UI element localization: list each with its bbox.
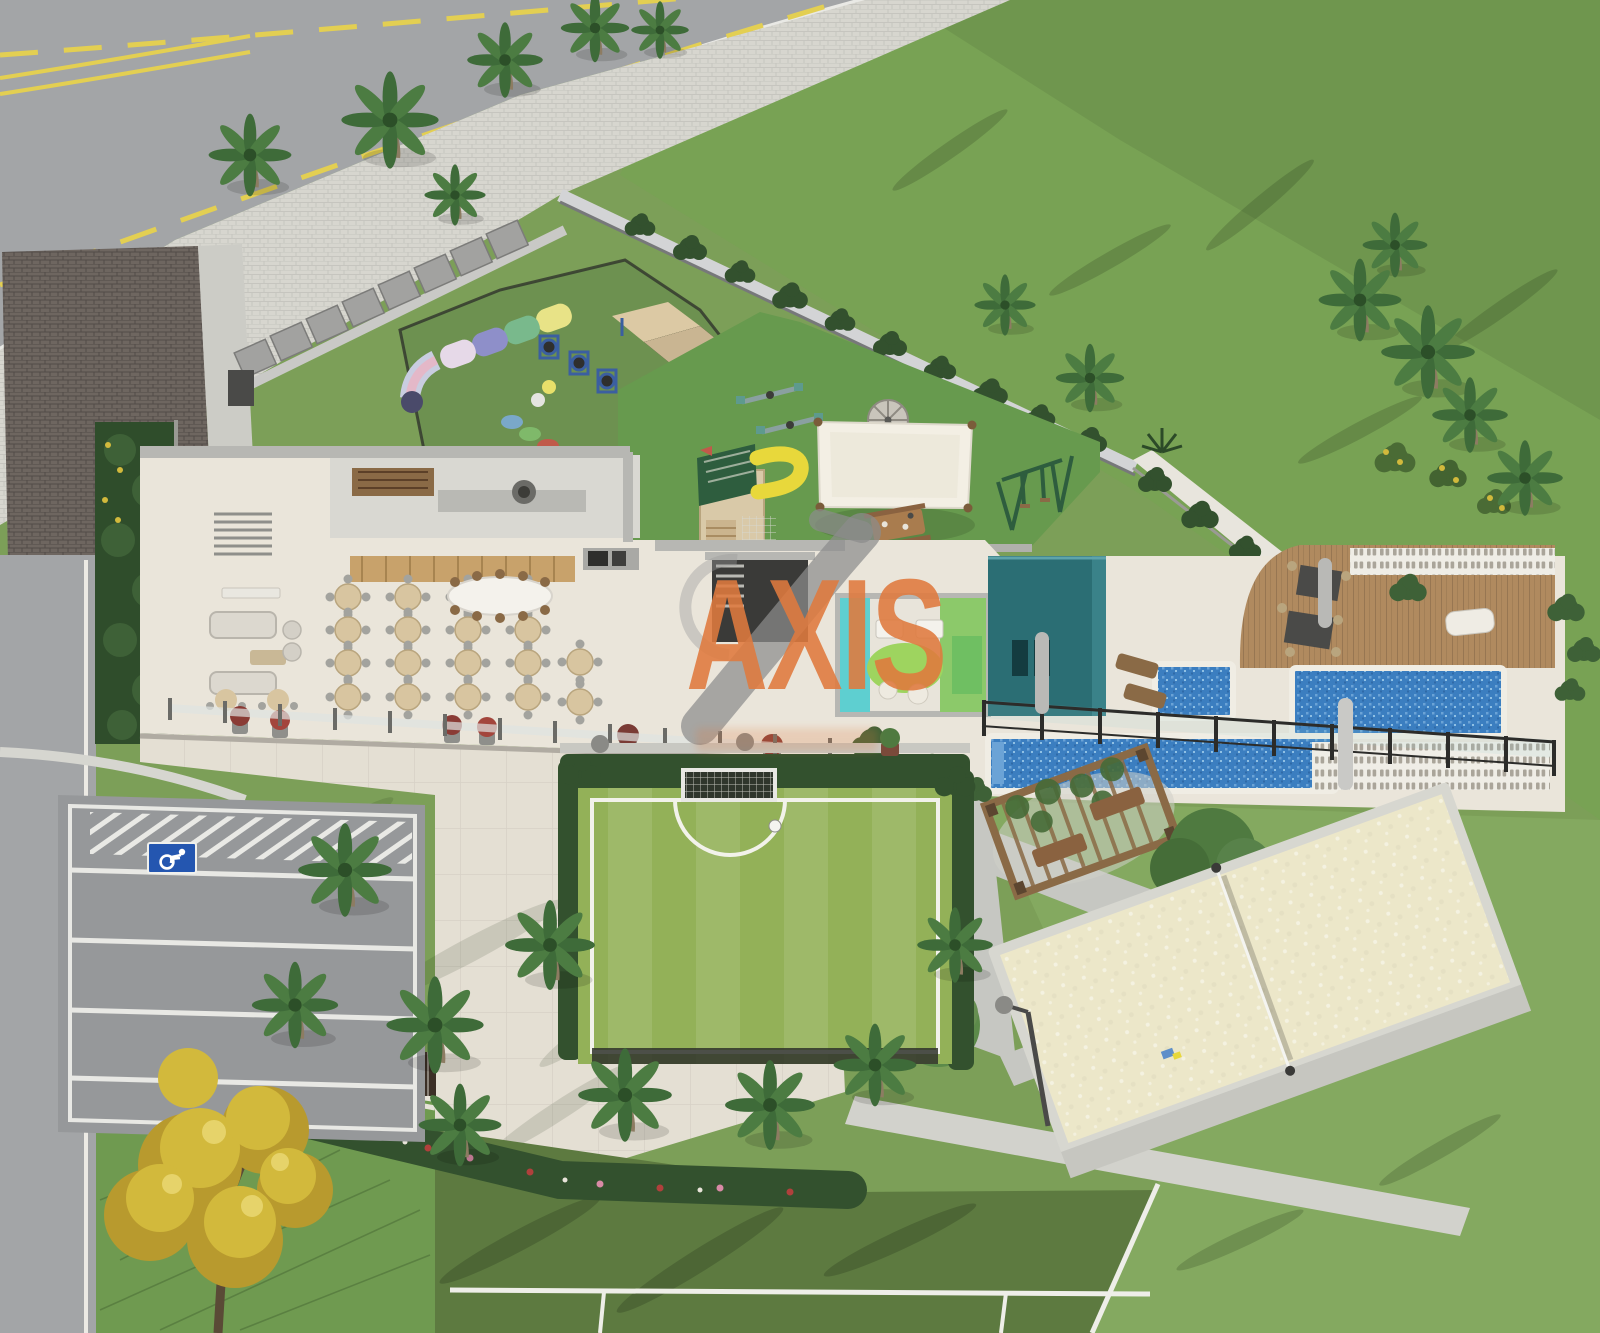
dog-ball	[542, 380, 556, 394]
site-plan-svg	[0, 0, 1600, 1333]
kids-playroom	[838, 596, 988, 714]
sun-lounger	[1445, 608, 1495, 637]
steel-column	[1318, 558, 1332, 628]
soccer-goal	[683, 770, 775, 800]
kids-table	[916, 620, 943, 638]
steel-column	[1035, 632, 1049, 714]
cobogo-screen-top	[1350, 548, 1555, 575]
bean-bag	[908, 684, 928, 704]
site-plan-render: AXIS	[0, 0, 1600, 1333]
accessible-parking-sign	[148, 843, 196, 873]
pool-house-door	[1012, 640, 1028, 676]
toy-cabinet	[952, 636, 982, 694]
dog-ball-2	[531, 393, 545, 407]
soccer-court	[558, 728, 975, 1070]
soccer-ball	[769, 820, 781, 832]
kids-pool	[1155, 664, 1233, 718]
kids-table	[876, 620, 903, 638]
bean-bag	[879, 681, 897, 699]
steel-column	[1338, 698, 1353, 790]
pool-steps	[992, 742, 1004, 784]
locker-door	[228, 370, 254, 406]
hall-back-wall	[140, 446, 630, 458]
